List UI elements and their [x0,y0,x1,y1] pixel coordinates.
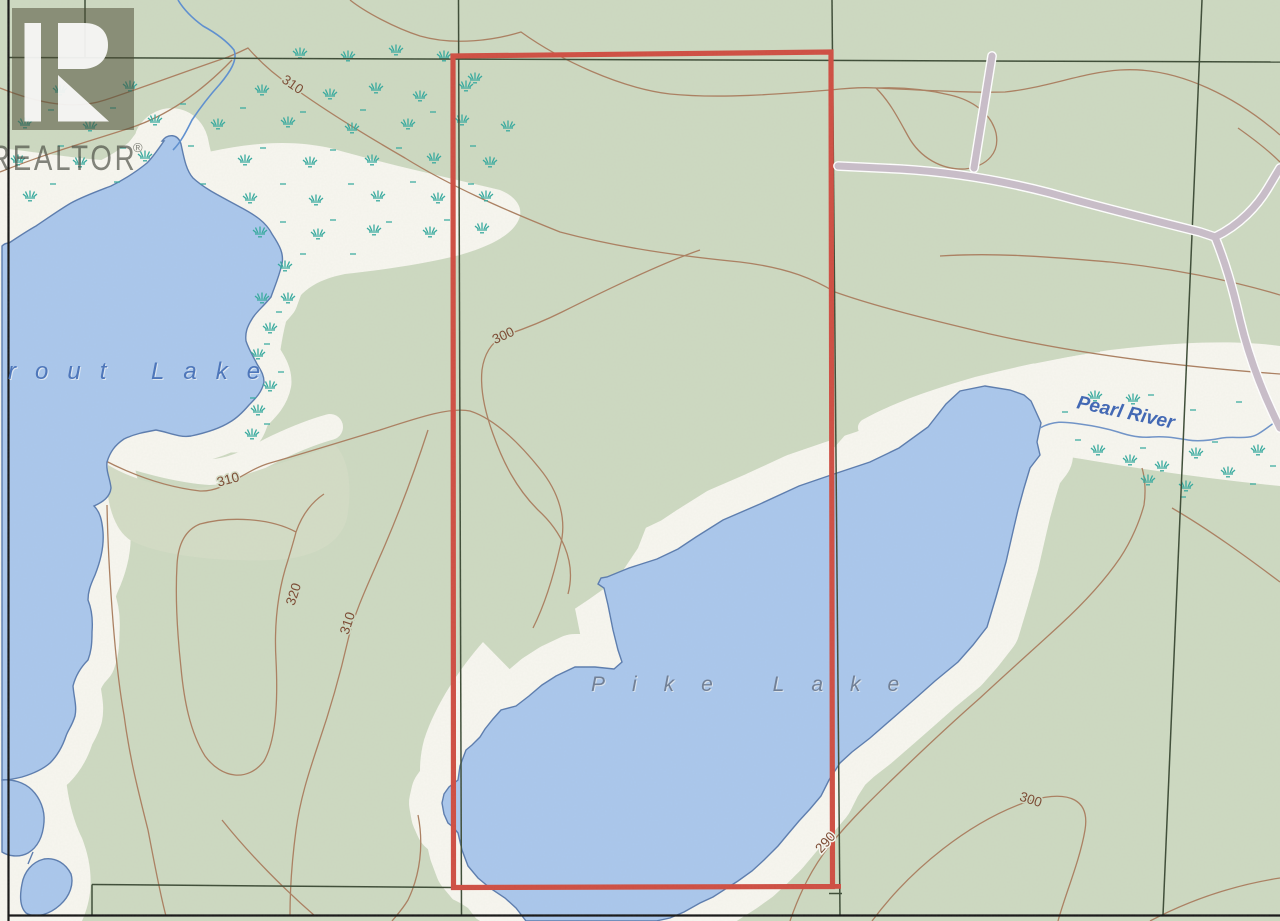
svg-text:REALTOR: REALTOR [0,138,137,178]
svg-text:®: ® [133,140,143,155]
